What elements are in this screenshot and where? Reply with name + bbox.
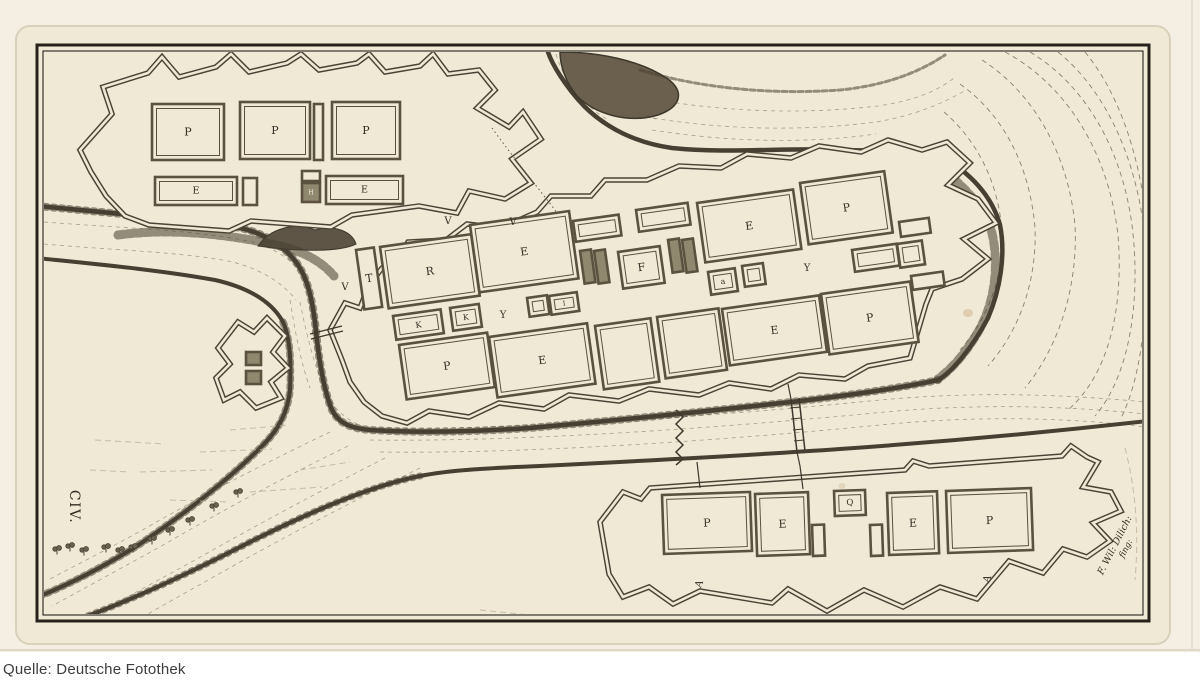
block-label: H: [308, 189, 314, 197]
building-block: [573, 215, 621, 242]
block-label: Q: [846, 498, 853, 508]
building-block: [657, 308, 727, 378]
street-label: V: [443, 216, 452, 227]
building-block: R: [380, 234, 480, 308]
block-label: P: [184, 126, 192, 139]
block-label: E: [193, 186, 200, 197]
building-block: I: [549, 292, 579, 315]
building-block: P: [332, 102, 400, 159]
shaded-building-block: [246, 371, 261, 384]
engraved-map: PPPEHE TREFEPKKIaPEEP PEQEP: [0, 0, 1200, 687]
building-block: [742, 263, 766, 287]
building-block: E: [326, 176, 403, 204]
building-block: [595, 318, 659, 389]
building-block: P: [152, 104, 224, 160]
building-block: K: [393, 309, 444, 339]
building-block: P: [800, 171, 893, 244]
building-block: F: [618, 246, 665, 288]
building-block: [302, 171, 320, 181]
building-block: E: [489, 323, 596, 397]
block-label: E: [909, 516, 917, 529]
building-block: E: [722, 295, 827, 365]
street-label: Y: [499, 310, 507, 321]
image-source-caption: Quelle: Deutsche Fotothek: [3, 661, 186, 678]
source-text: Quelle: Deutsche Fotothek: [3, 661, 186, 678]
foxing-spot: [963, 309, 973, 317]
building-block: [899, 218, 931, 237]
scanned-engraving-page: PPPEHE TREFEPKKIaPEEP PEQEP: [0, 0, 1200, 687]
building-block: [911, 272, 945, 290]
foxing-spot: [839, 483, 846, 489]
building-block: [527, 295, 549, 317]
street-label: V: [340, 282, 349, 293]
block-label: E: [361, 185, 368, 196]
building-block: [897, 241, 925, 268]
block-label: P: [271, 124, 279, 137]
shaded-building-block: H: [302, 183, 320, 202]
building-block: [870, 525, 883, 556]
building-block: E: [697, 190, 801, 263]
building-block: Q: [834, 490, 866, 516]
building-block: P: [946, 488, 1033, 553]
block-label: P: [362, 124, 370, 137]
building-block: E: [887, 491, 939, 555]
building-block: [314, 104, 323, 160]
building-block: E: [470, 211, 578, 292]
building-block: a: [708, 268, 738, 295]
building-block: [812, 525, 825, 556]
building-block: E: [155, 177, 237, 205]
street-label: V: [508, 217, 517, 228]
building-block: K: [450, 304, 482, 331]
block-label: P: [986, 514, 994, 527]
block-label: P: [703, 516, 711, 529]
street-label: Y: [803, 263, 811, 274]
building-block: P: [662, 492, 752, 554]
block-label: E: [778, 517, 786, 530]
building-block: P: [399, 333, 495, 400]
building-block: P: [821, 281, 919, 354]
building-block: E: [755, 492, 810, 556]
shaded-building-block: [246, 352, 261, 365]
plate-number-label: CIV.: [66, 490, 82, 524]
building-block: P: [240, 102, 310, 159]
building-block: [852, 244, 900, 272]
building-block: [243, 178, 257, 205]
